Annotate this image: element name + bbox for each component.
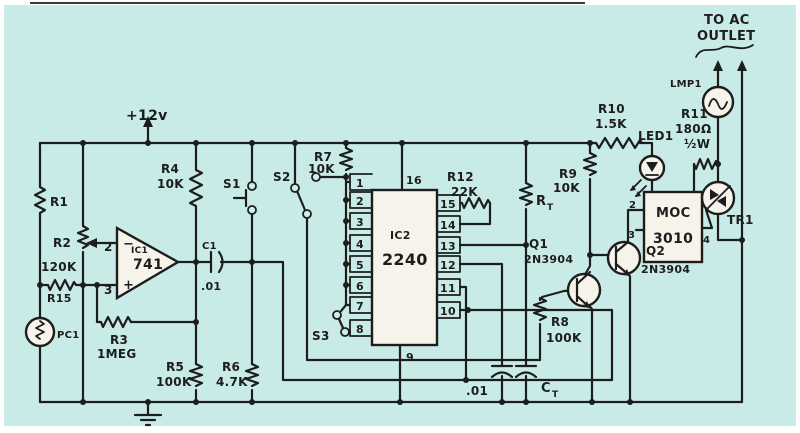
- moc-pin2-label: 2: [629, 200, 636, 211]
- ic1-label: IC1: [131, 246, 148, 256]
- r12-value: 22K: [451, 185, 478, 199]
- photocell-pc1: [26, 318, 54, 346]
- ic2-pin2: 2: [356, 195, 364, 208]
- c1-value: .01: [201, 280, 221, 293]
- ic2-pin7: 7: [356, 300, 364, 313]
- ic2-pin3: 3: [356, 216, 364, 229]
- r7-value: 10K: [308, 162, 335, 176]
- ic2-pin11: 11: [440, 282, 456, 295]
- r3-value: 1MEG: [97, 347, 137, 361]
- ic2-pin5: 5: [356, 259, 364, 272]
- r12-label: R12: [447, 170, 474, 184]
- ic2-pin13: 13: [440, 240, 456, 253]
- rt-label: R: [536, 194, 546, 209]
- moc-pin4-label: 4: [703, 235, 710, 246]
- r5-label: R5: [166, 360, 184, 374]
- q1-label: Q1: [529, 237, 548, 251]
- r6-value: 4.7K: [216, 375, 248, 389]
- transistor-q1: [568, 272, 600, 308]
- ic2-pin14: 14: [440, 219, 456, 232]
- r11-watt: ½W: [684, 137, 710, 151]
- schematic-figure: +12v R1 R2 120K R15 PC1 2 − IC1 741 + 3 …: [0, 0, 800, 433]
- s2-label: S2: [273, 170, 291, 184]
- cap01-value: .01: [466, 384, 488, 398]
- r9-value: 10K: [553, 181, 580, 195]
- led1-label: LED1: [638, 129, 673, 143]
- r15-label: R15: [47, 292, 72, 305]
- ic2-pin12: 12: [440, 259, 456, 272]
- c1-label: C1: [202, 241, 217, 252]
- rt-sub: T: [547, 203, 554, 213]
- page-edge-hairline: [30, 2, 585, 4]
- schematic-canvas: +12v R1 R2 120K R15 PC1 2 − IC1 741 + 3 …: [0, 0, 800, 433]
- ac-label-line1: TO AC: [704, 13, 750, 28]
- ic2-pin1: 1: [356, 177, 364, 190]
- r11-label: R11: [681, 107, 708, 121]
- lmp1-label: LMP1: [670, 79, 702, 90]
- pc1-label: PC1: [57, 330, 80, 341]
- r5-value: 100K: [156, 375, 192, 389]
- r8-value: 100K: [546, 331, 582, 345]
- ic2-pin4: 4: [356, 238, 364, 251]
- ic2-pin10: 10: [440, 305, 456, 318]
- r10-value: 1.5K: [595, 117, 627, 131]
- r2-label: R2: [53, 236, 71, 250]
- moc-pin3-label: 3: [628, 230, 635, 241]
- r10-label: R10: [598, 102, 625, 116]
- ic1-noninv-sign: +: [123, 278, 134, 293]
- ct-sub: T: [552, 390, 559, 400]
- ic2-pin16: 16: [406, 174, 422, 187]
- r6-label: R6: [222, 360, 240, 374]
- triac-tr1: [702, 182, 734, 214]
- s3-label: S3: [312, 329, 330, 343]
- q1-part-label: 2N3904: [524, 253, 573, 266]
- ic2-pin6: 6: [356, 280, 364, 293]
- ic2-label: IC2: [390, 229, 411, 242]
- r3-label: R3: [110, 333, 128, 347]
- r4-label: R4: [161, 162, 179, 176]
- r1-label: R1: [50, 195, 68, 209]
- moc-label-line2: 3010: [653, 231, 693, 247]
- moc-label-line1: MOC: [656, 206, 690, 221]
- s1-label: S1: [223, 177, 241, 191]
- supply-label: +12v: [126, 108, 168, 124]
- transistor-q2: [608, 242, 640, 276]
- r11-value: 180Ω: [675, 122, 711, 136]
- ic1-part-label: 741: [133, 257, 163, 273]
- ic1-pin3-label: 3: [104, 283, 113, 297]
- ic1-pin2-label: 2: [104, 240, 113, 254]
- ic2-pin9: 9: [406, 351, 414, 364]
- ic2-part-label: 2240: [382, 250, 428, 269]
- r8-label: R8: [551, 315, 569, 329]
- r4-value: 10K: [157, 177, 184, 191]
- ic2-pin15: 15: [440, 198, 456, 211]
- tr1-label: TR1: [727, 213, 754, 227]
- q2-part-label: 2N3904: [641, 263, 690, 276]
- r2-value: 120K: [41, 260, 77, 274]
- ic2-pin8: 8: [356, 323, 364, 336]
- ct-label: C: [541, 381, 551, 396]
- ac-label-line2: OUTLET: [697, 29, 755, 44]
- r9-label: R9: [559, 167, 577, 181]
